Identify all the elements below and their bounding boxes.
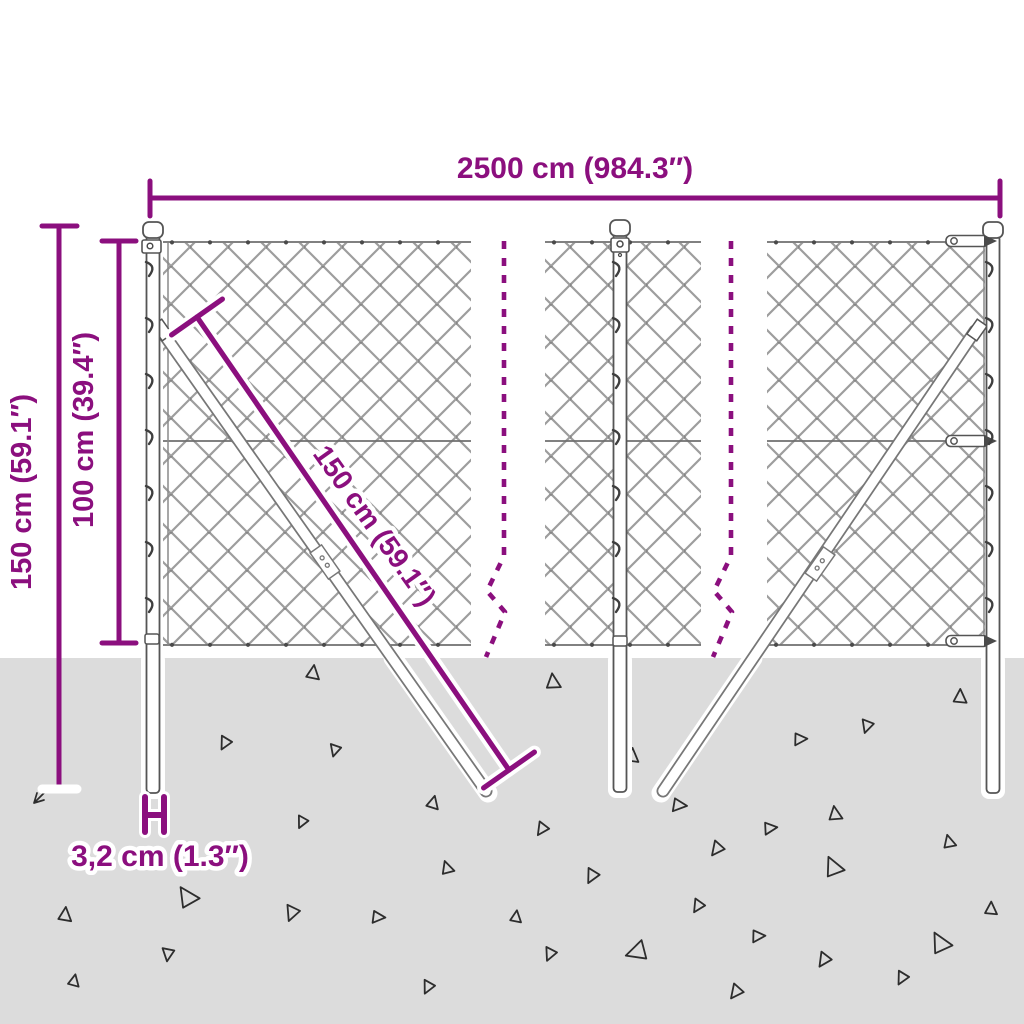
mesh-knuckle [208, 240, 212, 244]
mesh-knuckle [590, 240, 594, 244]
mesh-knuckle [436, 643, 440, 647]
mesh-knuckle [628, 643, 632, 647]
mesh-knuckle [552, 643, 556, 647]
mesh-knuckle [590, 643, 594, 647]
fence-dimension-diagram: 2500 cm (984.3″) 150 cm (59.1″) 100 cm (… [0, 0, 1024, 1024]
mesh-knuckle [208, 643, 212, 647]
mesh-knuckle [926, 643, 930, 647]
dim-total-height-label: 150 cm (59.1″) [6, 394, 38, 590]
mesh-knuckle [850, 240, 854, 244]
mesh-knuckle [246, 643, 250, 647]
mesh-knuckle [850, 643, 854, 647]
mesh-knuckle [398, 643, 402, 647]
mesh-knuckle [360, 643, 364, 647]
mesh-knuckle [170, 240, 174, 244]
middle-post [610, 220, 630, 792]
mesh-knuckle [666, 240, 670, 244]
mesh-knuckle [322, 240, 326, 244]
dim-post-diameter-label: 3,2 cm (1.3″) [71, 840, 249, 873]
mesh-knuckle [552, 240, 556, 244]
dim-mesh-height-label: 100 cm (39.4″) [68, 332, 100, 528]
mesh-knuckle [360, 240, 364, 244]
mesh-knuckle [888, 643, 892, 647]
mesh-knuckle [170, 643, 174, 647]
dim-total-width: 2500 cm (984.3″) [150, 152, 1000, 216]
mesh-knuckle [812, 643, 816, 647]
mesh-knuckle [246, 240, 250, 244]
mesh-knuckle [888, 240, 892, 244]
mesh-knuckle [322, 643, 326, 647]
dim-total-width-label: 2500 cm (984.3″) [457, 152, 693, 185]
dim-mesh-height: 100 cm (39.4″) [68, 241, 136, 643]
mesh-knuckle [666, 643, 670, 647]
mesh-knuckle [284, 240, 288, 244]
mesh-knuckle [436, 240, 440, 244]
mesh-knuckle [774, 643, 778, 647]
mesh-knuckle [774, 240, 778, 244]
mesh-knuckle [926, 240, 930, 244]
mesh-knuckle [398, 240, 402, 244]
mesh-knuckle [284, 643, 288, 647]
mesh-knuckle [812, 240, 816, 244]
